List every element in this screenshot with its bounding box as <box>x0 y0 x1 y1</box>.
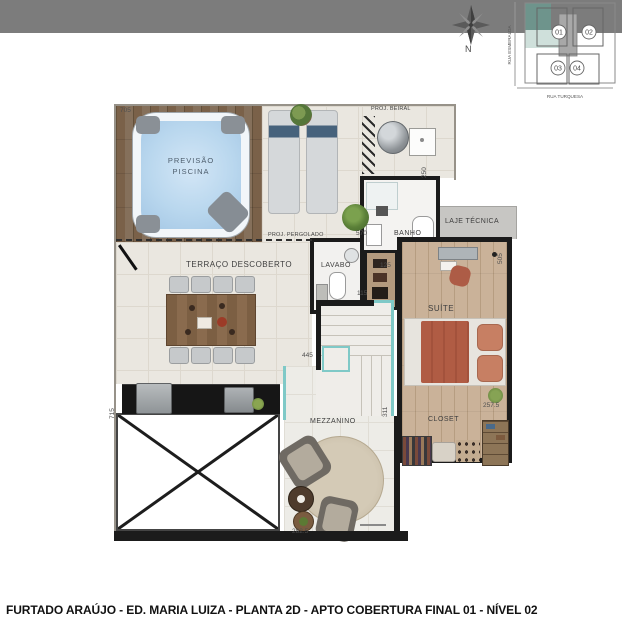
suite-label: SUÍTE <box>428 304 454 313</box>
dim-505: 505 <box>497 253 504 264</box>
side-table-1 <box>288 486 314 512</box>
jacuzzi-seat-tr <box>221 116 245 134</box>
sun-lounger-2 <box>306 110 338 214</box>
dim-311: 311 <box>382 407 389 417</box>
banho-shelf-icon <box>376 206 388 216</box>
pool-label-line2: PISCINA <box>141 166 241 177</box>
shower-drain-icon <box>420 138 424 142</box>
banho-label: BANHO <box>394 230 421 237</box>
dim-282-5: 282.5 <box>292 528 308 535</box>
compass-north-label: N <box>465 44 472 54</box>
jacuzzi-seat-tl <box>136 116 160 134</box>
dining-chair <box>213 347 233 364</box>
lavabo-toilet-icon <box>329 272 346 300</box>
site-plan: 01 02 03 04 RUA ESMERALDA RUA TURQUESA <box>503 0 622 105</box>
floorplan-sheet: N 01 02 03 04 RUA ESMERALDA RUA TURQUESA <box>0 0 622 627</box>
street-left-label: RUA ESMERALDA <box>507 25 512 65</box>
wardrobe-item-blue <box>486 424 495 429</box>
table-item-6 <box>229 329 235 335</box>
table-item-5 <box>185 329 191 335</box>
closet-rack-icon <box>402 436 432 466</box>
lavabo-label: LAVABO <box>321 262 351 269</box>
dim-570: 570 <box>356 230 367 237</box>
beiral-outline-right <box>454 104 456 180</box>
stair-wall-left <box>316 300 321 370</box>
dining-table <box>166 294 256 346</box>
proj-pergolado-label: PROJ. PERGOLADO <box>268 232 324 238</box>
lavabo-sink-icon <box>344 248 359 263</box>
mezz-glass-wall <box>283 366 286 420</box>
mezzanino-label: MEZZANINO <box>310 418 356 425</box>
niche-item-3 <box>372 287 388 299</box>
counter-sink-icon <box>136 383 172 414</box>
dining-chair <box>169 276 189 293</box>
closet-plant-icon <box>488 388 503 403</box>
dim-445: 445 <box>302 352 313 359</box>
armchair-1-cushion <box>285 442 325 482</box>
dining-chair <box>235 347 255 364</box>
closet-ottoman-icon <box>432 442 456 462</box>
dim-250: 250 <box>421 167 428 178</box>
stair-glass-right <box>391 300 394 416</box>
tree-icon <box>342 204 369 231</box>
table-item-1 <box>189 305 195 311</box>
jacuzzi: PREVISÃO PISCINA <box>132 112 250 238</box>
laje-label: LAJE TÉCNICA <box>445 218 499 225</box>
stair-wall-top <box>316 300 374 306</box>
shower-box-icon <box>409 128 436 156</box>
niche-item-2 <box>373 273 387 282</box>
compass-rose-icon <box>452 5 490 45</box>
dim-115: 115 <box>357 290 367 297</box>
pool-label: PREVISÃO PISCINA <box>141 155 241 177</box>
sheet-title: FURTADO ARAÚJO - ED. MARIA LUIZA - PLANT… <box>6 603 537 617</box>
pool-label-line1: PREVISÃO <box>141 155 241 166</box>
pergolado-dashed-line <box>116 239 312 241</box>
dim-125: 125 <box>380 262 391 269</box>
grill-icon <box>224 387 254 413</box>
dining-chair <box>213 276 233 293</box>
dining-chair <box>235 276 255 293</box>
bed <box>404 318 506 386</box>
potted-plant-icon <box>290 104 312 126</box>
stair-landing <box>322 346 350 372</box>
sun-lounger-1 <box>268 110 300 214</box>
dim-257-5: 257.5 <box>483 402 499 409</box>
banho-sink-icon <box>366 224 382 246</box>
site-unit-02: 02 <box>585 30 593 37</box>
proj-beiral-label: PROJ. BEIRAL <box>371 106 411 112</box>
street-bottom-label: RUA TURQUESA <box>547 94 584 99</box>
dining-chair <box>191 276 211 293</box>
wall-hatch <box>362 116 375 174</box>
room-suite-closet: SUÍTE CLOSET <box>397 237 512 463</box>
jacuzzi-seat-bl <box>136 215 160 233</box>
bottom-wall <box>114 531 408 541</box>
bed-pillow-2 <box>477 355 503 382</box>
terrace-label: TERRAÇO DESCOBERTO <box>186 260 292 269</box>
water-tank-icon <box>377 121 409 154</box>
closet-shoes-icon <box>456 440 480 462</box>
wardrobe-item-brown <box>496 435 505 440</box>
bed-blanket <box>421 321 469 383</box>
site-unit-01: 01 <box>555 30 563 37</box>
dining-chair <box>169 347 189 364</box>
void-open-below <box>116 413 280 531</box>
room-laje-tecnica: LAJE TÉCNICA <box>436 206 517 239</box>
table-item-2 <box>219 303 225 309</box>
site-unit-04: 04 <box>573 66 581 73</box>
table-item-3 <box>197 317 212 329</box>
table-item-4 <box>217 317 227 327</box>
staircase <box>316 300 394 416</box>
mezz-right-wall <box>394 416 400 536</box>
suite-desk-icon <box>438 247 478 260</box>
site-unit-03: 03 <box>554 66 562 73</box>
counter-plant-icon <box>252 398 264 410</box>
bed-pillow-1 <box>477 324 503 351</box>
dining-chair <box>191 347 211 364</box>
void-x-icon <box>118 415 278 529</box>
suite-desk-chair-icon <box>448 264 472 288</box>
closet-label: CLOSET <box>428 416 459 423</box>
side-table-2-plant-icon <box>299 517 308 526</box>
closet-wardrobe-icon <box>482 420 509 466</box>
dim-705: 705 <box>120 107 131 114</box>
dim-715: 715 <box>109 408 116 419</box>
side-table-1-decor <box>297 495 305 503</box>
bbq-counter <box>122 384 280 414</box>
